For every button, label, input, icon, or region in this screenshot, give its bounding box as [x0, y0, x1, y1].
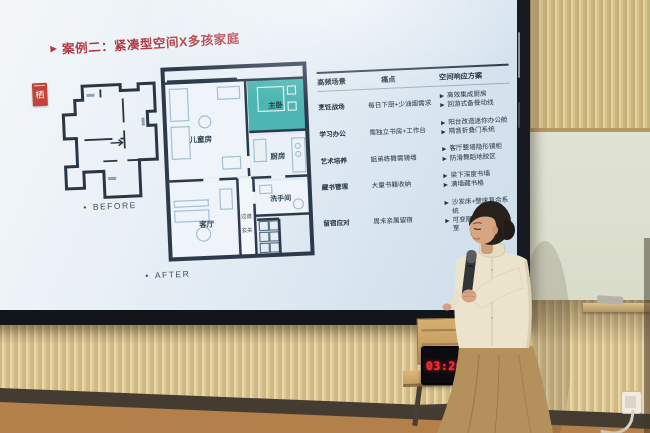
room-label-children: 儿童房 [188, 134, 212, 145]
table-row: 艺术培养 姐弟练舞需镜墙 ▶客厅整墙隐形镜柜 ▶防滑舞蹈地胶区 [320, 143, 513, 170]
room-label-living: 客厅 [198, 219, 215, 230]
classroom-photo: 多孩家庭居住空间 任务一：家庭人物画像 ▶ 案例二：紧凑型空间X多孩家庭 栖 [0, 0, 650, 433]
after-label: • AFTER [145, 269, 190, 281]
after-floorplan: 儿童房 主卧 厨房 洗手间 过道 玄关 客厅 [156, 57, 319, 264]
table-row: 学习办公 需独立书房+工作台 ▶阳台改造迷你办公舱 ▶隔音折叠门系统 [319, 116, 512, 143]
cell-pain: 需独立书房+工作台 [369, 124, 435, 137]
arrow-icon: ▶ [440, 102, 445, 112]
before-label: • BEFORE [83, 200, 137, 212]
before-floorplan [52, 77, 172, 207]
table-row: 藏书管理 大量书籍收纳 ▶梁下深度书墙 ▶满墙藏书格 [321, 170, 514, 197]
frame-reflection [518, 102, 520, 128]
bullet-icon: • [83, 202, 88, 212]
table-row: 烹饪战场 每日下厨+少油烟需求 ▶高效集成厨房 ▶回游式备餐动线 [318, 90, 511, 117]
arrow-icon: ▶ [441, 128, 446, 138]
logo-badge: 栖 [32, 83, 48, 107]
cell-scene: 烹饪战场 [318, 100, 362, 112]
arrow-icon: ▶ [441, 119, 446, 129]
arrow-icon: ▶ [442, 155, 447, 165]
ledge-object [597, 295, 623, 304]
slide-title: ▶ 案例二：紧凑型空间X多孩家庭 [50, 28, 240, 59]
skirt [437, 346, 553, 433]
cell-scene: 艺术培养 [320, 154, 364, 166]
hand [443, 304, 452, 311]
arrow-icon: ▶ [440, 92, 445, 102]
logo-char: 栖 [35, 88, 45, 101]
title-marker-icon: ▶ [50, 44, 57, 52]
solution-item: 隔音折叠门系统 [449, 126, 496, 137]
cell-pain: 大量书籍收纳 [371, 177, 437, 190]
room-label-master: 主卧 [268, 99, 284, 110]
col-header-scene: 高频场景 [317, 76, 361, 88]
presenter [395, 196, 570, 433]
solution-item: 回游式备餐动线 [447, 100, 494, 111]
ear [492, 226, 498, 235]
cell-solutions: ▶客厅整墙隐形镜柜 ▶防滑舞蹈地胶区 [442, 143, 513, 165]
solution-item: 满墙藏书格 [451, 180, 484, 191]
cell-pain: 每日下厨+少油烟需求 [368, 97, 434, 110]
cell-scene: 留宿应对 [323, 215, 367, 227]
arrow-icon: ▶ [444, 182, 449, 192]
cell-scene: 藏书管理 [322, 180, 366, 192]
after-label-text: AFTER [155, 269, 191, 281]
slide-title-text: 案例二：紧凑型空间X多孩家庭 [61, 28, 240, 58]
room-label-kitchen: 厨房 [270, 150, 286, 161]
col-header-solution: 空间响应方案 [439, 70, 509, 83]
arrow-icon: ▶ [443, 172, 448, 182]
cell-pain: 姐弟练舞需镜墙 [370, 151, 436, 164]
frame-reflection [518, 32, 520, 78]
cell-scene: 学习办公 [319, 127, 363, 139]
cell-solutions: ▶梁下深度书墙 ▶满墙藏书格 [443, 170, 514, 192]
before-label-text: BEFORE [93, 200, 137, 212]
wall-shadow [644, 238, 650, 433]
table-header: 高频场景 痛点 空间响应方案 [317, 70, 509, 92]
cell-solutions: ▶高效集成厨房 ▶回游式备餐动线 [440, 90, 511, 112]
arrow-icon: ▶ [442, 146, 447, 156]
col-header-pain: 痛点 [367, 73, 433, 86]
bullet-icon: • [145, 270, 150, 280]
cell-solutions: ▶阳台改造迷你办公舱 ▶隔音折叠门系统 [441, 116, 512, 138]
solution-item: 防滑舞蹈地胶区 [450, 153, 497, 164]
